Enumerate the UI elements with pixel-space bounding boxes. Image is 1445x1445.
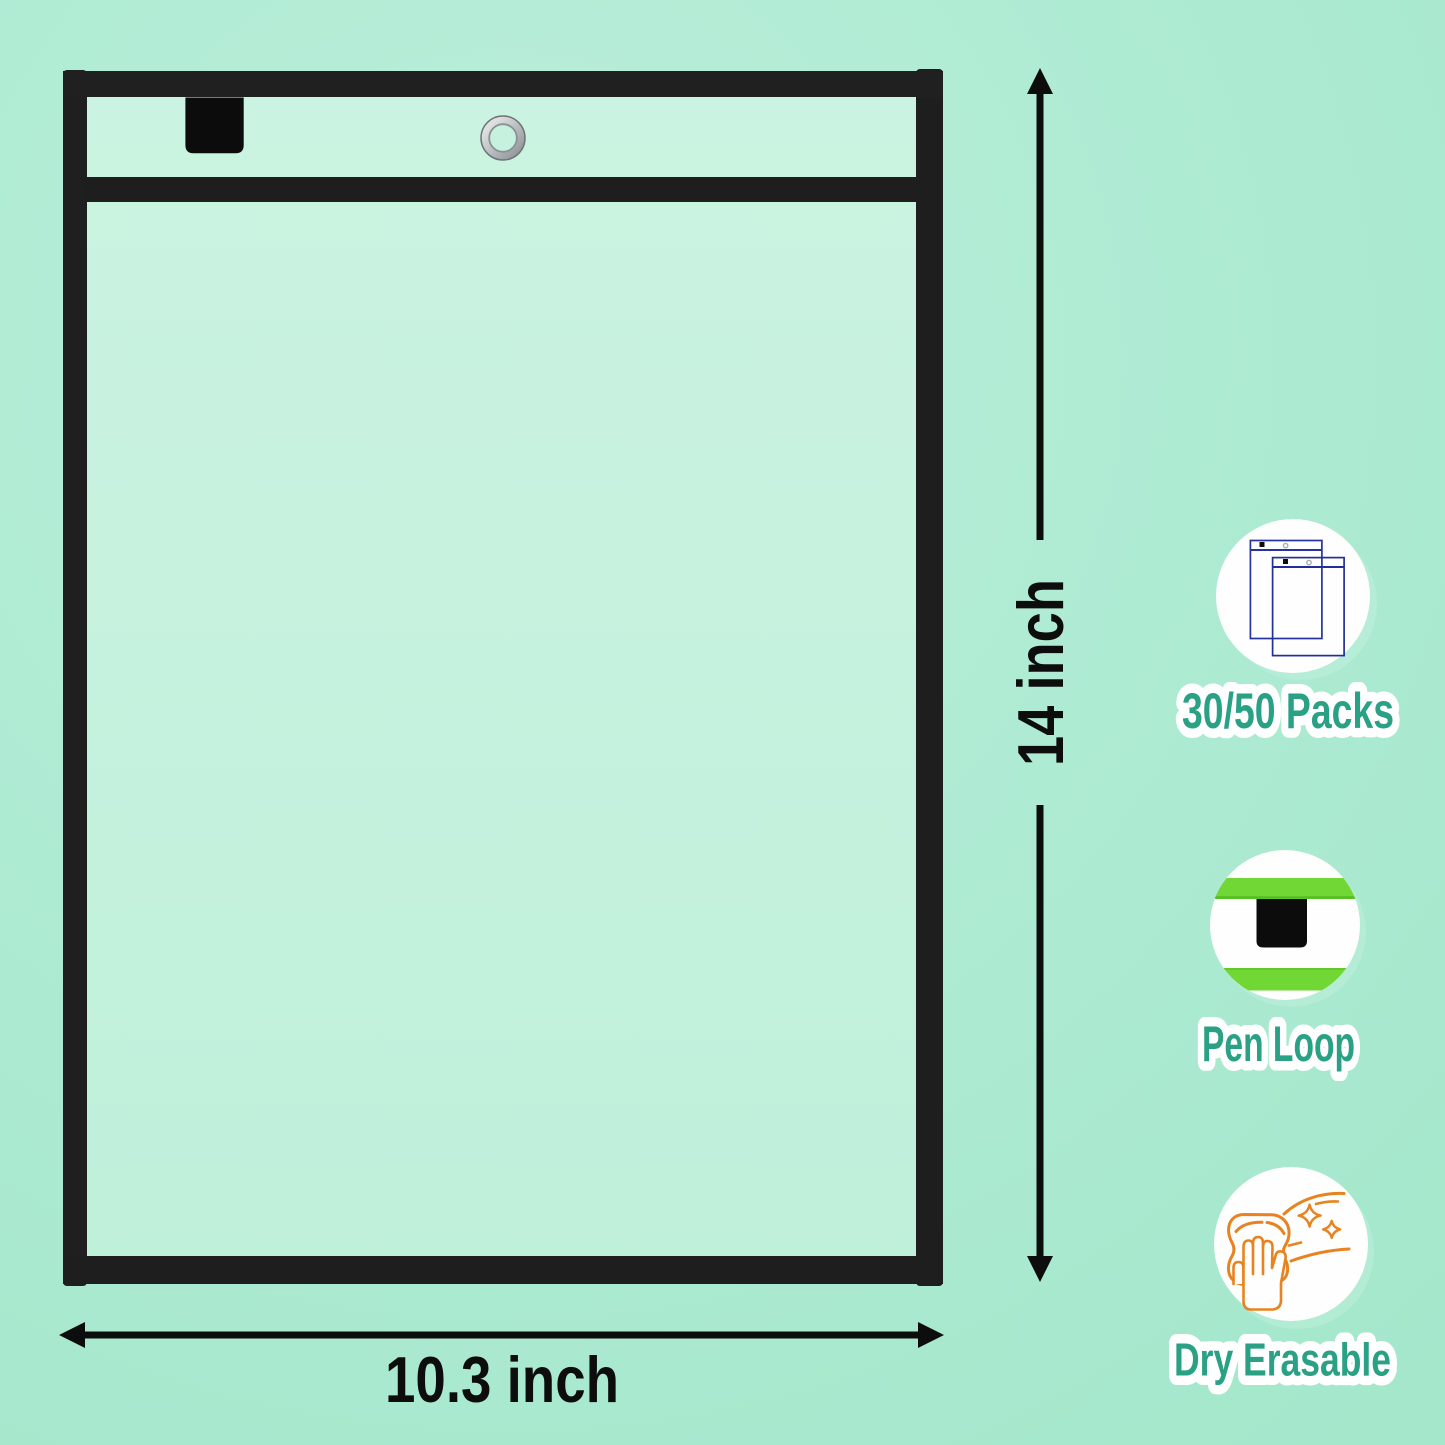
svg-text:30/50 Packs: 30/50 Packs xyxy=(1182,683,1394,739)
svg-text:14 inch: 14 inch xyxy=(1004,579,1077,766)
svg-text:Pen Loop: Pen Loop xyxy=(1202,1016,1355,1072)
svg-text:10.3 inch: 10.3 inch xyxy=(385,1343,619,1416)
svg-text:Dry Erasable: Dry Erasable xyxy=(1174,1334,1391,1386)
